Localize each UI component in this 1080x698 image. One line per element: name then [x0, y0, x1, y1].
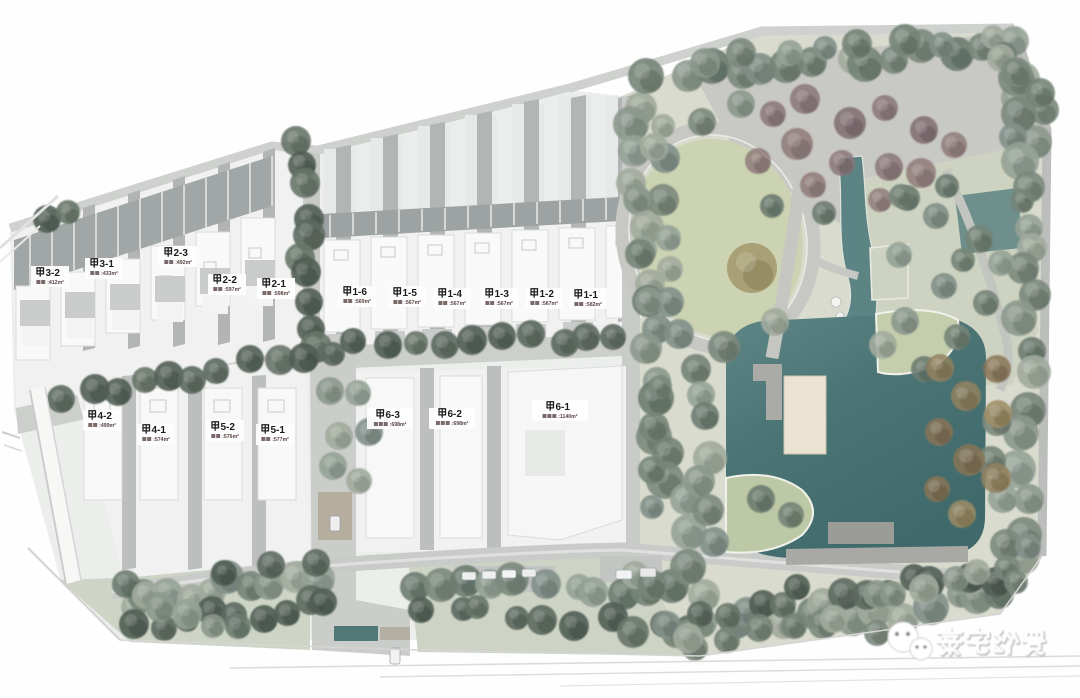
svg-text::567m²: :567m²: [404, 300, 421, 306]
svg-text:1-6: 1-6: [353, 287, 368, 298]
svg-text::492m²: :492m²: [175, 260, 192, 266]
svg-text::412m²: :412m²: [47, 280, 64, 286]
svg-text:1-2: 1-2: [540, 289, 555, 300]
svg-text:2-1: 2-1: [272, 279, 287, 290]
svg-text::567m²: :567m²: [541, 301, 558, 307]
svg-text:4-1: 4-1: [152, 425, 167, 436]
svg-text:3-2: 3-2: [46, 268, 61, 279]
svg-text:1-5: 1-5: [403, 288, 418, 299]
svg-text::577m²: :577m²: [272, 437, 289, 443]
svg-text::1140m²: :1140m²: [558, 414, 578, 420]
svg-text::698m²: :698m²: [390, 422, 407, 428]
svg-text::569m²: :569m²: [354, 299, 371, 305]
svg-text:6-3: 6-3: [386, 410, 401, 421]
svg-text:6-2: 6-2: [448, 409, 463, 420]
svg-text::567m²: :567m²: [496, 301, 513, 307]
svg-text::576m²: :576m²: [222, 434, 239, 440]
svg-text::433m²: :433m²: [101, 271, 118, 277]
svg-text:1-1: 1-1: [584, 290, 599, 301]
svg-text:2-3: 2-3: [174, 248, 189, 259]
svg-text:1-3: 1-3: [495, 289, 510, 300]
svg-text:2-2: 2-2: [223, 275, 238, 286]
svg-text::598m²: :598m²: [273, 291, 290, 297]
svg-text:1-4: 1-4: [448, 289, 463, 300]
svg-text:5-2: 5-2: [221, 422, 236, 433]
svg-text::582m²: :582m²: [585, 302, 602, 308]
svg-text::597m²: :597m²: [224, 287, 241, 293]
svg-text:5-1: 5-1: [271, 425, 286, 436]
svg-text::574m²: :574m²: [153, 437, 170, 443]
svg-text:6-1: 6-1: [556, 402, 571, 413]
svg-text::698m²: :698m²: [452, 421, 469, 427]
svg-text::567m²: :567m²: [449, 301, 466, 307]
svg-text::499m²: :499m²: [99, 423, 116, 429]
svg-text:3-1: 3-1: [100, 259, 115, 270]
svg-text:4-2: 4-2: [98, 411, 113, 422]
